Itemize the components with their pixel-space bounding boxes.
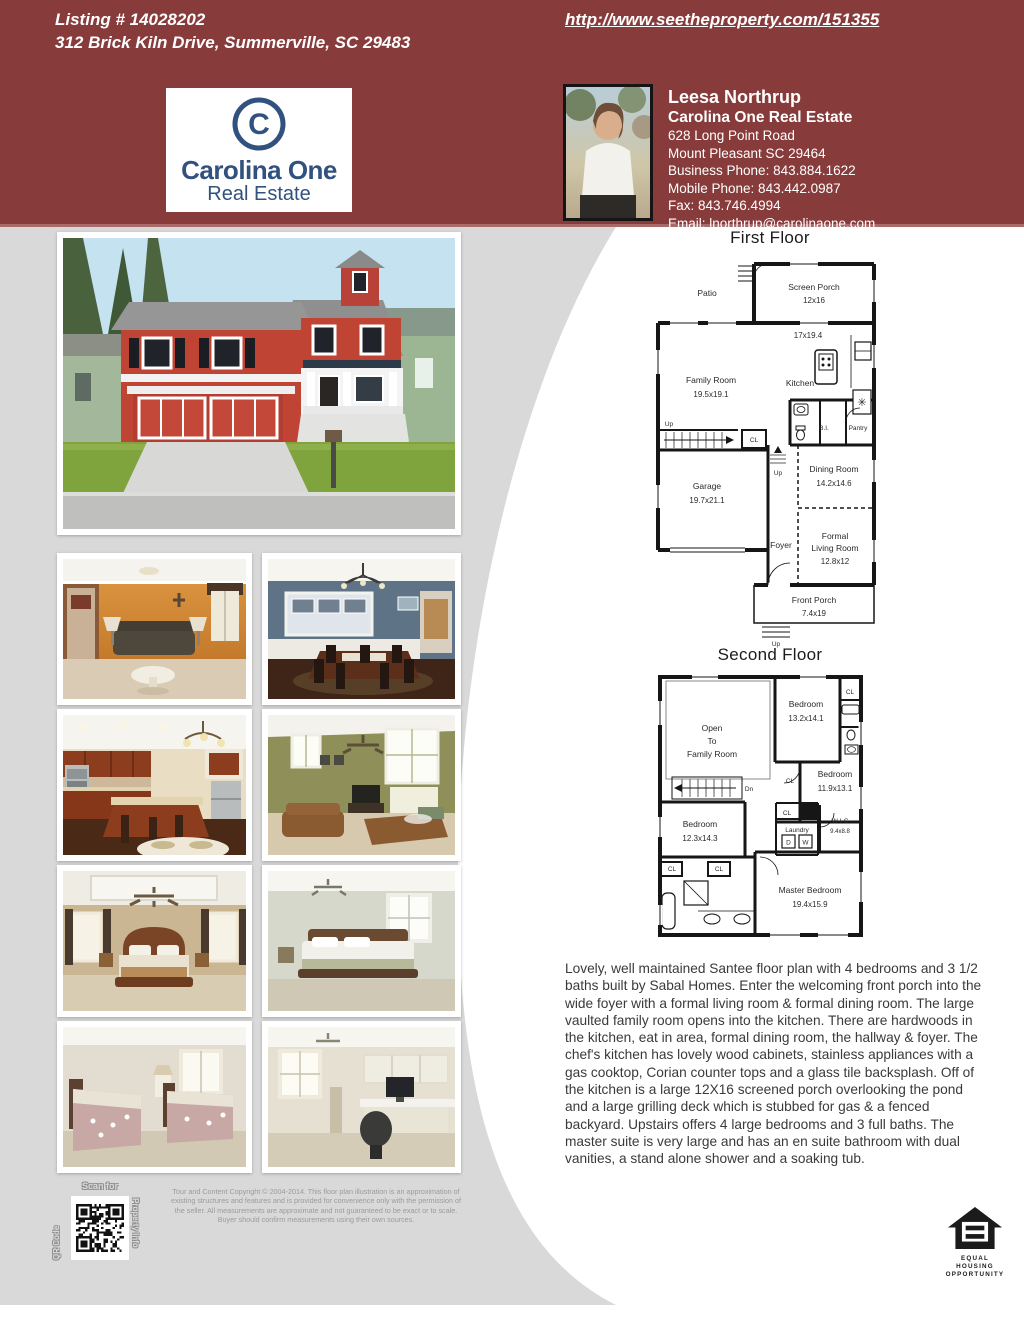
room-label-bi: B.I. <box>819 425 829 432</box>
svg-text:19.7x21.1: 19.7x21.1 <box>689 496 725 505</box>
svg-text:11.9x13.1: 11.9x13.1 <box>818 784 853 793</box>
svg-text:19.5x19.1: 19.5x19.1 <box>693 390 729 399</box>
room-label-master: Master Bedroom <box>779 885 842 895</box>
room-label-wic: W-I-C <box>832 818 849 825</box>
equal-housing-house-icon <box>947 1206 1003 1250</box>
room-label-screen-porch: Screen Porch <box>788 282 840 292</box>
svg-text:CL: CL <box>668 866 677 873</box>
copyright-disclaimer: Tour and Content Copyright © 2004-2014. … <box>170 1187 462 1224</box>
room-label-dining: Dining Room <box>809 464 858 474</box>
listing-address: 312 Brick Kiln Drive, Summerville, SC 29… <box>55 31 410 54</box>
agent-photo <box>563 84 653 221</box>
logo-subtitle-text: Real Estate <box>166 183 352 205</box>
room-label-garage: Garage <box>693 481 722 491</box>
logo-brand-text: Carolina One <box>166 157 352 183</box>
qr-property-info-label: Property Info <box>131 1198 140 1262</box>
agent-fax: Fax: 843.746.4994 <box>668 197 875 215</box>
agent-name: Leesa Northrup <box>668 86 875 108</box>
svg-text:12x16: 12x16 <box>803 296 825 305</box>
circle-c-logo-icon: C <box>166 96 352 157</box>
photo-family-room <box>262 709 461 861</box>
listing-number: Listing # 14028202 <box>55 8 410 31</box>
svg-text:12.8x12: 12.8x12 <box>821 557 850 566</box>
svg-text:7.4x19: 7.4x19 <box>802 609 827 618</box>
qr-code <box>71 1196 129 1260</box>
photo-exterior-front <box>57 232 461 535</box>
agent-business-phone: Business Phone: 843.884.1622 <box>668 162 875 180</box>
svg-text:CL: CL <box>846 689 855 696</box>
svg-text:Dn: Dn <box>745 786 754 793</box>
photo-office <box>262 1021 461 1173</box>
property-description: Lovely, well maintained Santee floor pla… <box>565 960 985 1168</box>
photo-dining-room <box>262 553 461 705</box>
room-label-front-porch: Front Porch <box>792 595 837 605</box>
svg-text:✳: ✳ <box>857 397 866 409</box>
room-label-family-room: Family Room <box>686 375 736 385</box>
svg-text:19.4x15.9: 19.4x15.9 <box>792 900 828 909</box>
equal-housing-line1: EQUAL HOUSING <box>942 1255 1008 1271</box>
room-label-pantry: Pantry <box>849 425 869 432</box>
svg-text:17x19.4: 17x19.4 <box>794 331 823 340</box>
photo-kitchen <box>57 709 252 861</box>
second-floor-title: Second Floor <box>650 645 890 665</box>
equal-housing-line2: OPPORTUNITY <box>942 1271 1008 1279</box>
svg-text:CL: CL <box>786 778 795 785</box>
equal-housing-logo: EQUAL HOUSING OPPORTUNITY <box>942 1206 1008 1279</box>
svg-text:CL: CL <box>750 437 759 444</box>
svg-text:To: To <box>708 736 717 746</box>
room-label-laundry: Laundry <box>785 827 809 834</box>
room-label-formal: Formal <box>822 531 849 541</box>
svg-text:Living Room: Living Room <box>811 543 858 553</box>
svg-text:12.3x14.3: 12.3x14.3 <box>682 834 718 843</box>
room-label-open: Open <box>702 723 723 733</box>
listing-heading: Listing # 14028202 312 Brick Kiln Drive,… <box>55 8 410 54</box>
room-label-bedroom1: Bedroom <box>789 699 824 709</box>
svg-text:Up: Up <box>665 421 674 428</box>
svg-text:CL: CL <box>783 810 792 817</box>
carolina-one-logo: C Carolina One Real Estate <box>166 88 352 212</box>
qr-scan-for-label: Scan for <box>58 1181 142 1191</box>
photo-bedroom <box>262 865 461 1017</box>
room-label-patio: Patio <box>697 288 717 298</box>
agent-address1: 628 Long Point Road <box>668 127 875 145</box>
svg-text:W: W <box>802 840 809 847</box>
qr-code-label: QR Code <box>52 1198 61 1260</box>
agent-mobile-phone: Mobile Phone: 843.442.0987 <box>668 180 875 198</box>
photo-guest-bedroom <box>57 1021 252 1173</box>
room-label-bedroom3: Bedroom <box>683 819 718 829</box>
svg-text:14.2x14.6: 14.2x14.6 <box>816 479 852 488</box>
first-floor-title: First Floor <box>650 228 890 248</box>
room-label-foyer: Foyer <box>770 540 792 550</box>
photo-master-bedroom <box>57 865 252 1017</box>
svg-text:C: C <box>248 108 270 141</box>
room-label-kitchen: Kitchen <box>786 378 815 388</box>
svg-text:13.2x14.1: 13.2x14.1 <box>788 714 824 723</box>
svg-text:Up: Up <box>774 470 783 477</box>
agent-company: Carolina One Real Estate <box>668 108 875 127</box>
room-label-bedroom2: Bedroom <box>818 769 853 779</box>
svg-text:9.4x8.8: 9.4x8.8 <box>830 829 850 835</box>
flyer-page: Listing # 14028202 312 Brick Kiln Drive,… <box>0 0 1024 1325</box>
svg-text:D: D <box>786 840 791 847</box>
photo-living-room <box>57 553 252 705</box>
header-band: Listing # 14028202 312 Brick Kiln Drive,… <box>0 0 1024 227</box>
svg-text:CL: CL <box>715 866 724 873</box>
svg-text:Family Room: Family Room <box>687 749 737 759</box>
agent-address2: Mount Pleasant SC 29464 <box>668 145 875 163</box>
property-tour-link[interactable]: http://www.seetheproperty.com/151355 <box>565 10 879 30</box>
second-floor-plan: Open To Family Room Bedroom 13.2x14.1 CL… <box>650 667 890 950</box>
first-floor-plan: ✳ Patio Screen Porch 12x16 17x19.4 Kitch… <box>650 250 890 648</box>
agent-info-block: Leesa Northrup Carolina One Real Estate … <box>668 86 875 233</box>
